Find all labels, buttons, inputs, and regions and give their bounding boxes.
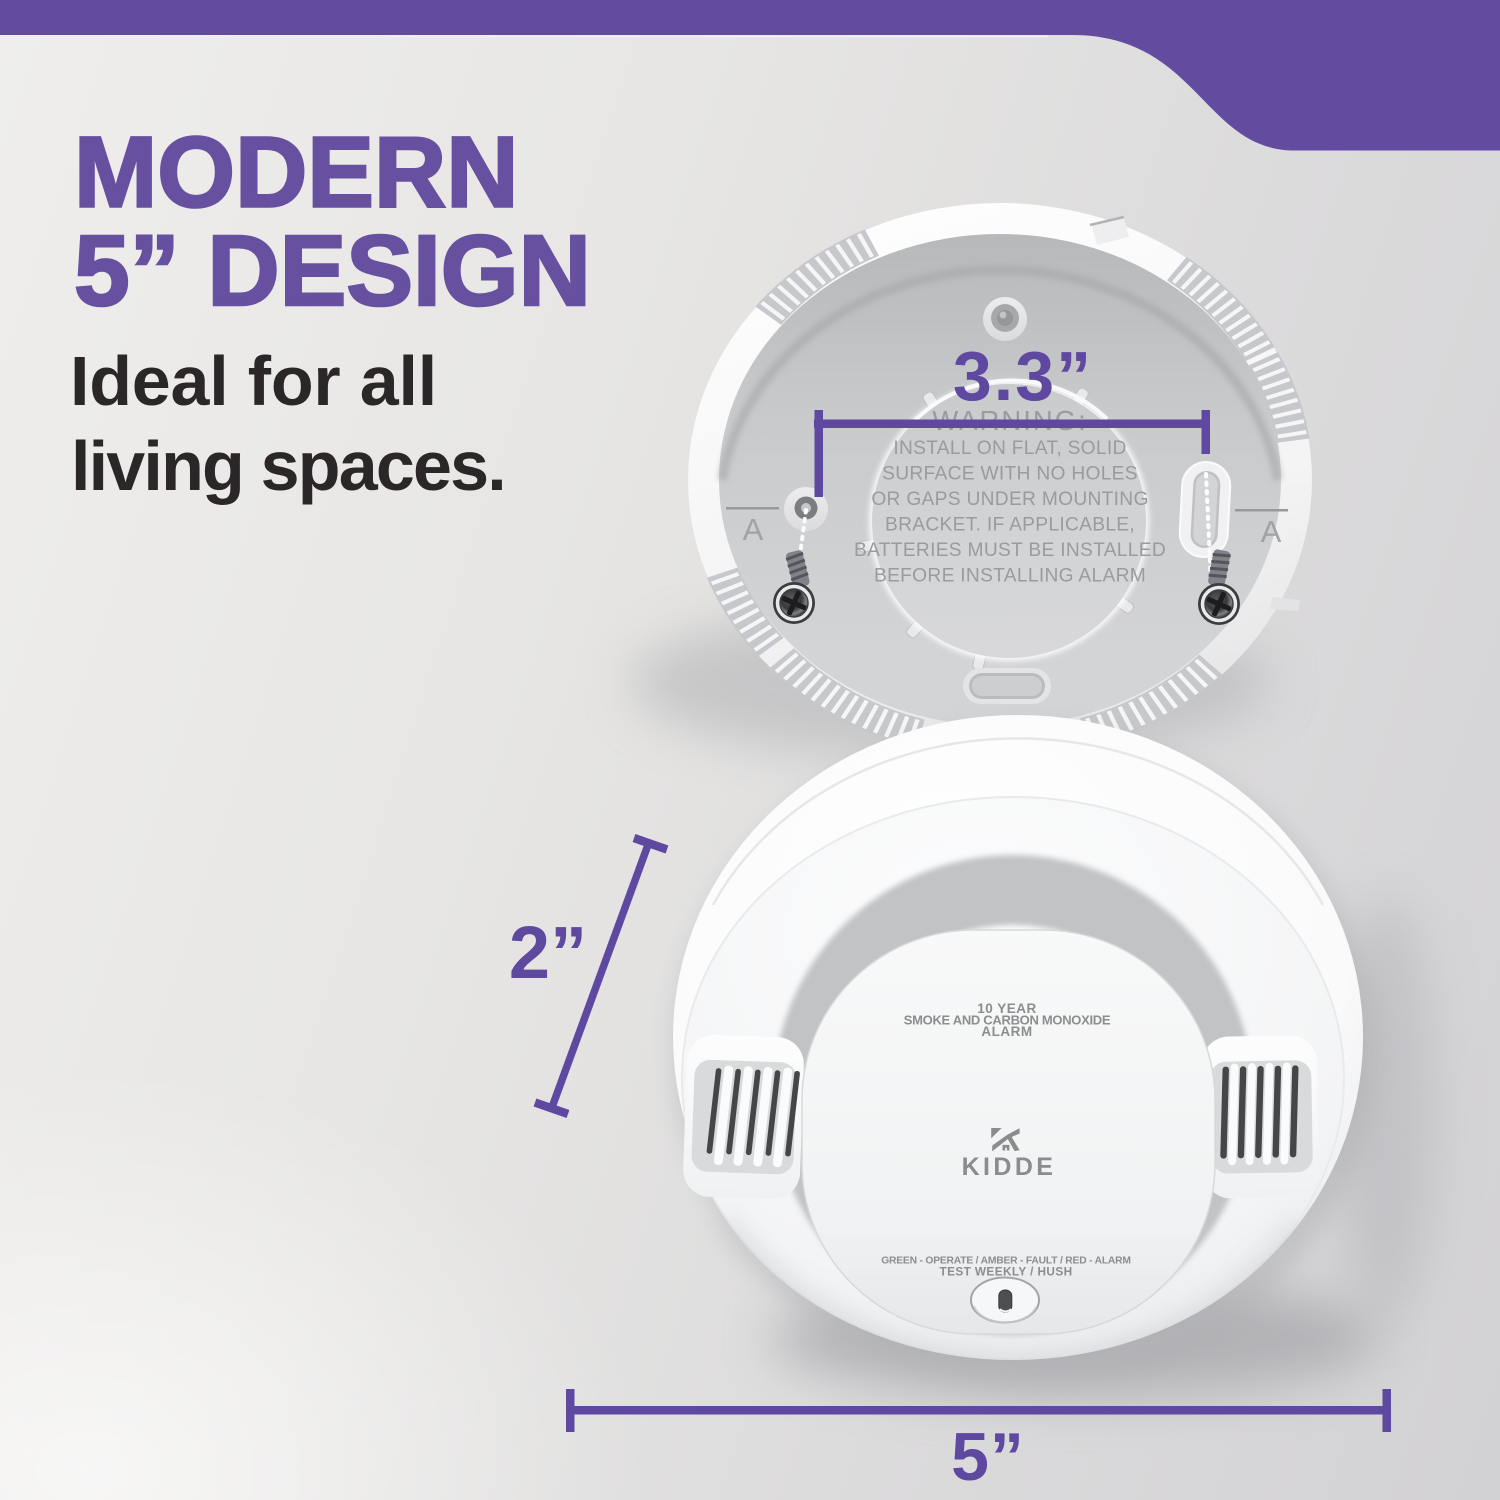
svg-text:BEFORE INSTALLING ALARM: BEFORE INSTALLING ALARM [874,566,1146,587]
svg-text:INSTALL ON FLAT, SOLID: INSTALL ON FLAT, SOLID [893,438,1126,459]
svg-text:A: A [1261,514,1282,549]
svg-text:living spaces.: living spaces. [71,427,505,505]
svg-text:5” DESIGN: 5” DESIGN [74,215,591,327]
svg-text:SURFACE WITH NO HOLES: SURFACE WITH NO HOLES [882,464,1138,485]
svg-text:MODERN: MODERN [74,117,518,229]
svg-text:3.3”: 3.3” [953,337,1093,415]
svg-text:2”: 2” [509,911,587,994]
svg-text:TEST WEEKLY / HUSH: TEST WEEKLY / HUSH [939,1265,1072,1279]
svg-text:A: A [743,512,764,547]
svg-text:Ideal for all: Ideal for all [70,342,437,420]
svg-text:OR GAPS UNDER MOUNTING: OR GAPS UNDER MOUNTING [871,489,1148,510]
svg-text:ALARM: ALARM [981,1024,1032,1039]
svg-text:BRACKET. IF APPLICABLE,: BRACKET. IF APPLICABLE, [885,515,1135,536]
svg-text:KIDDE: KIDDE [962,1153,1057,1181]
svg-text:5”: 5” [951,1419,1025,1495]
svg-text:BATTERIES MUST BE INSTALLED: BATTERIES MUST BE INSTALLED [854,540,1166,561]
